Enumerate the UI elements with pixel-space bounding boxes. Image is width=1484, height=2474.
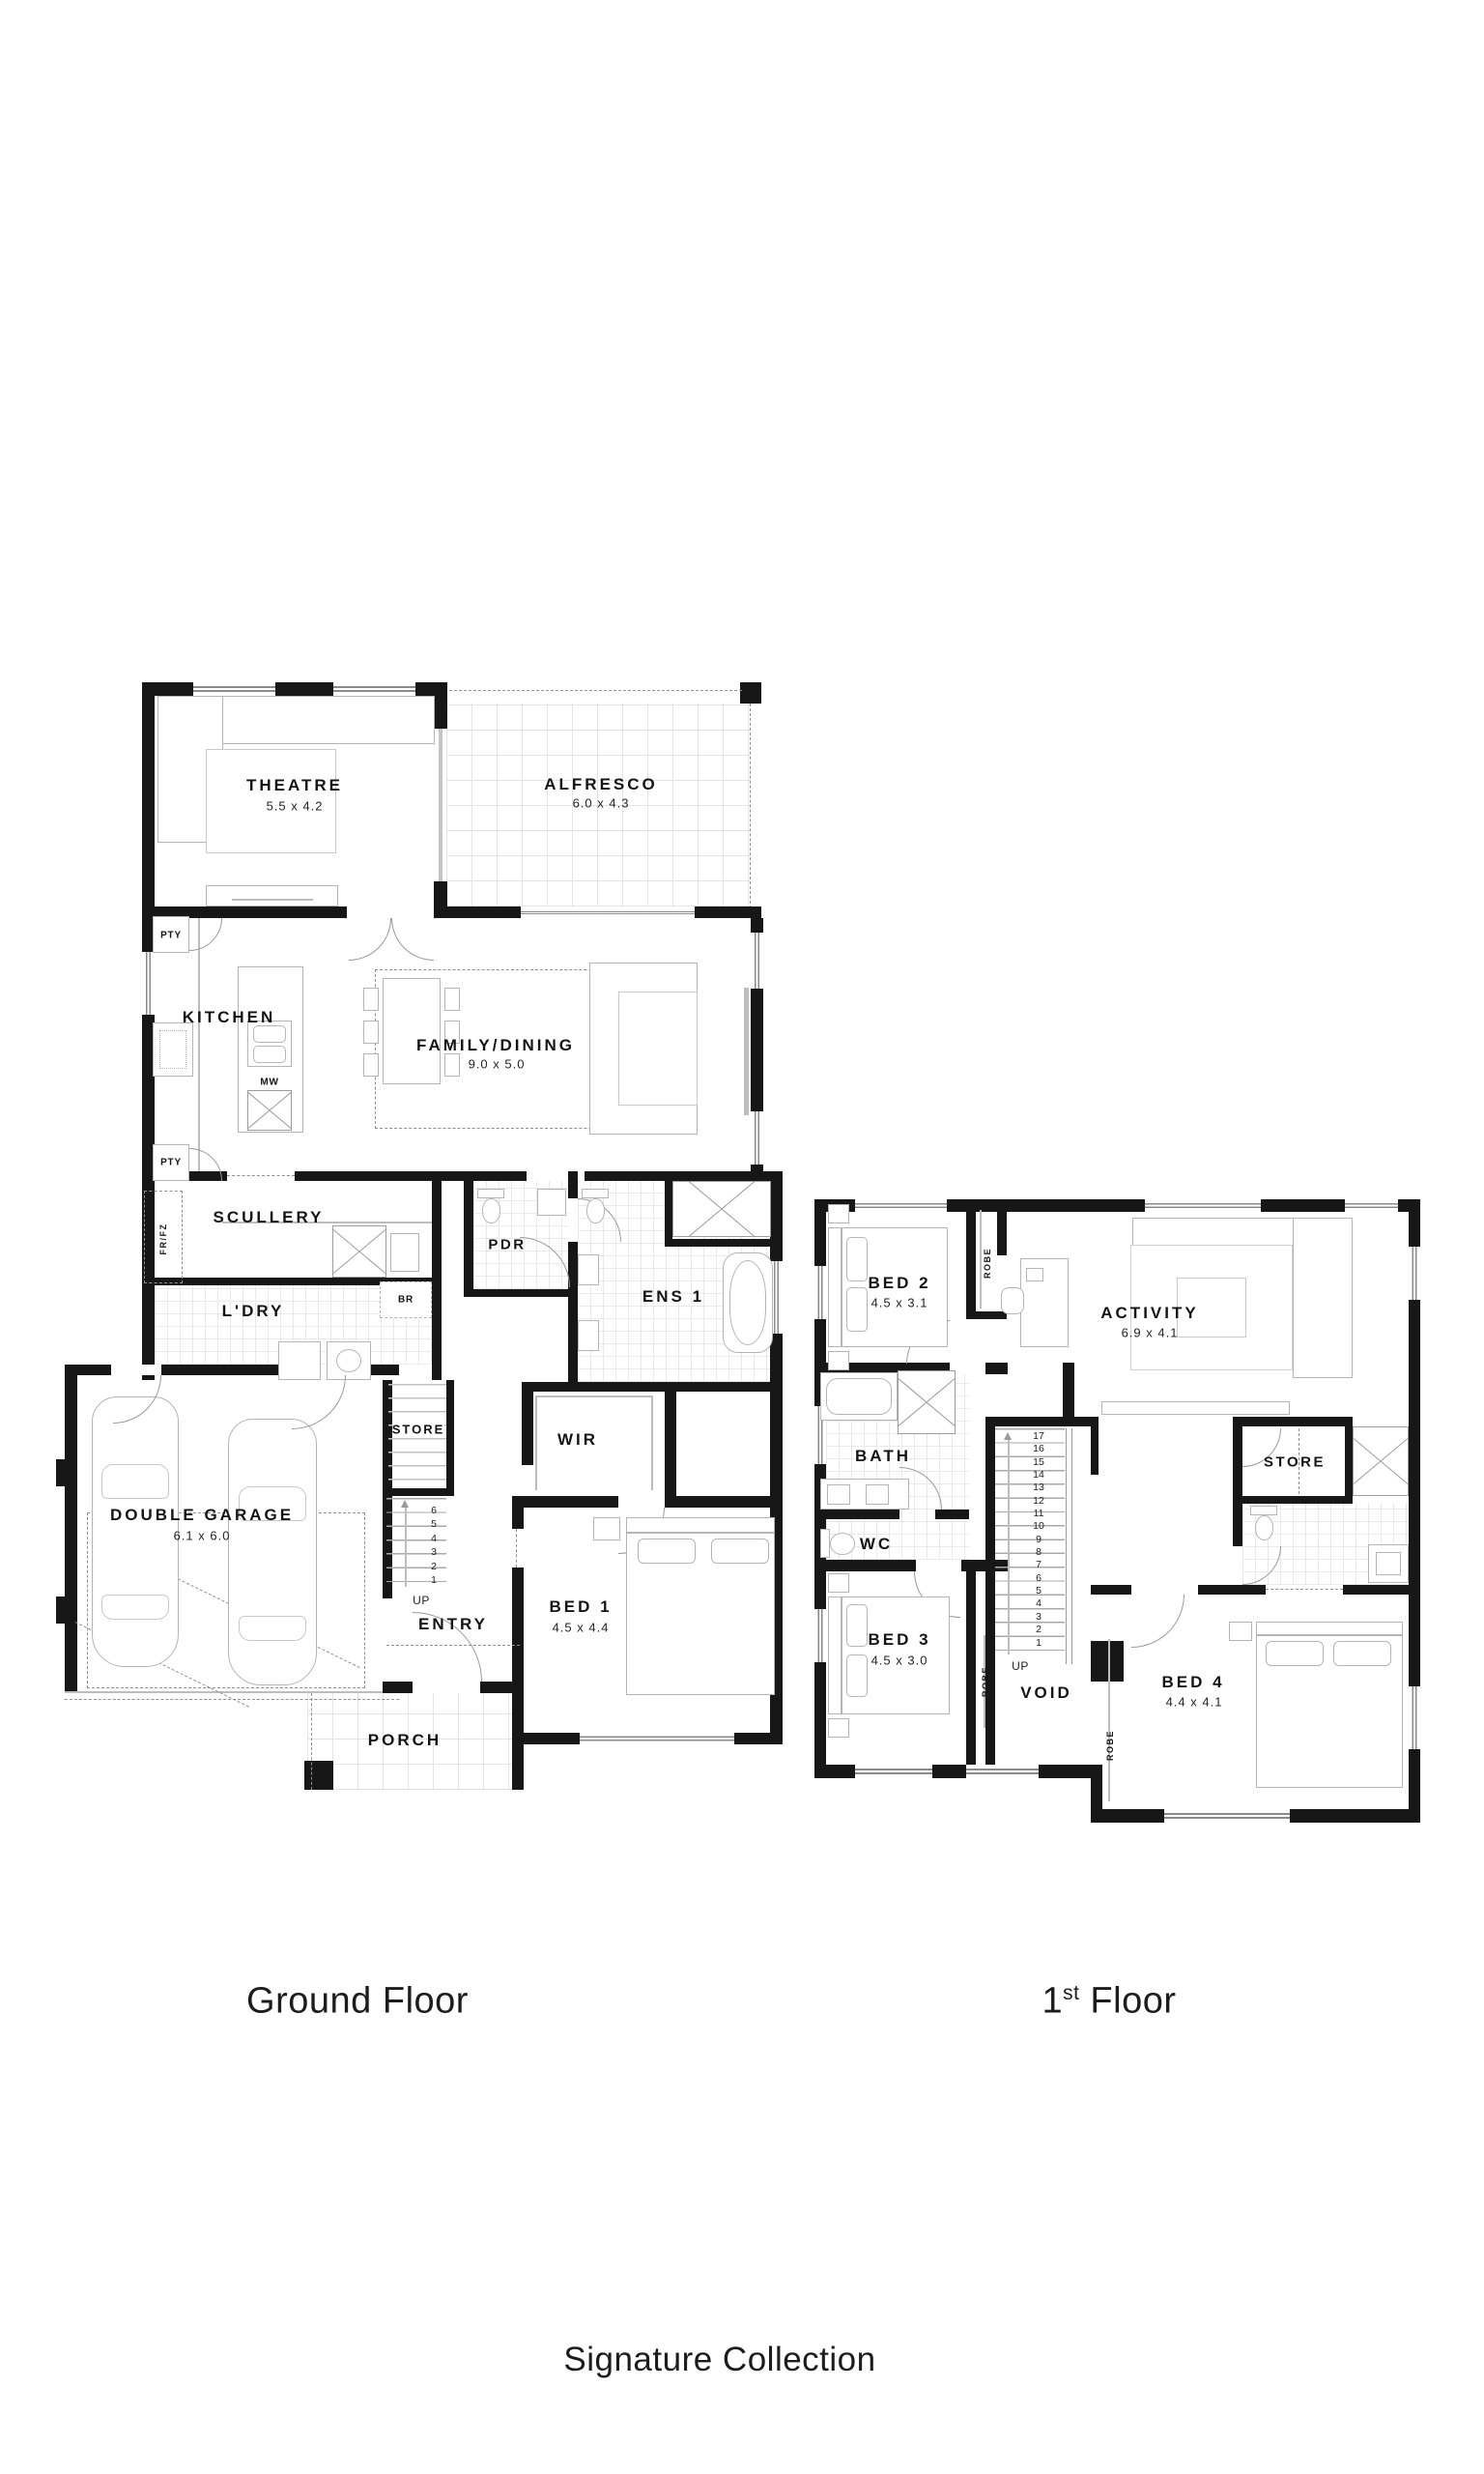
room-label-store-first: STORE (1264, 1454, 1326, 1471)
room-label-bath: BATH (855, 1447, 911, 1466)
pdr-bottom-wall (464, 1289, 578, 1297)
ens1-vanity (578, 1320, 599, 1351)
pillow (1266, 1641, 1324, 1666)
bed4-top-wall (1198, 1585, 1244, 1595)
bed2-bath-wall (985, 1363, 1008, 1374)
label-mw: MW (260, 1078, 278, 1088)
bed1-left-wall (512, 1496, 524, 1529)
ens1-left-wall (568, 1171, 578, 1198)
nightstand (1229, 1622, 1252, 1641)
dining-chair (363, 1053, 379, 1077)
label-pty-top: PTY (160, 931, 182, 941)
window (751, 933, 763, 989)
pillow (638, 1539, 696, 1564)
alfresco-corner-post (740, 682, 761, 704)
label-up-ground: UP (413, 1594, 430, 1607)
wardrobe-shelf (535, 1395, 653, 1397)
floorplan-sheet: { "captions": { "ground_floor": "Ground … (0, 0, 1484, 2474)
nightstand (593, 1517, 620, 1540)
bathtub-inner (729, 1260, 766, 1345)
stair-number: 4 (425, 1532, 442, 1545)
garage-open-edge (65, 1691, 399, 1693)
stair-numbers-first: 1716151413121110987654321 (1024, 1430, 1053, 1650)
pantry-door-arc (189, 1148, 222, 1181)
stair-right-wall (1091, 1417, 1099, 1475)
toilet-bowl (482, 1198, 500, 1223)
robe-rail (980, 1210, 982, 1309)
wall (432, 1171, 442, 1380)
dining-chair (363, 988, 379, 1011)
label-pty-bottom: PTY (160, 1158, 182, 1168)
toilet-tank (1250, 1506, 1277, 1515)
pantry-door-arc (189, 918, 222, 951)
window (333, 682, 415, 696)
theatre-screen (206, 885, 338, 906)
store-left-wall (1233, 1417, 1242, 1504)
wall (295, 1171, 442, 1181)
window (1409, 1247, 1420, 1300)
bed2-headboard (828, 1227, 842, 1347)
glass-divider (437, 729, 444, 881)
toilet-tank (820, 1529, 830, 1558)
wall-pier (56, 1597, 68, 1624)
room-dim-bed1: 4.5 x 4.4 (553, 1621, 610, 1635)
room-label-bed1: BED 1 (549, 1597, 612, 1617)
room-label-theatre: THEATRE (246, 776, 343, 795)
room-dim-bed4: 4.4 x 4.1 (1166, 1695, 1223, 1710)
vanity-basin (866, 1484, 889, 1505)
ens1-shower-wall (665, 1171, 672, 1247)
desk-monitor (1026, 1268, 1043, 1281)
alfresco-bottom-wall (695, 906, 761, 918)
room-label-void: VOID (1020, 1683, 1072, 1703)
label-robe-bed4: ROBE (1105, 1730, 1115, 1761)
car-rear-window (239, 1616, 306, 1641)
ens2-bottom-wall (1343, 1585, 1420, 1595)
label-robe-bed3: ROBE (981, 1666, 990, 1697)
window (855, 1199, 947, 1212)
stair-number: 3 (1024, 1611, 1053, 1624)
stair-number: 17 (1024, 1430, 1053, 1443)
room-label-family: FAMILY/DINING (416, 1036, 575, 1055)
stair-number: 1 (425, 1573, 442, 1587)
tv-unit (744, 988, 749, 1115)
window (142, 952, 155, 1015)
island-cabinet (247, 1090, 292, 1131)
stair-number: 16 (1024, 1443, 1053, 1455)
window (1409, 1686, 1420, 1749)
wall (442, 1171, 527, 1181)
wall (434, 682, 447, 729)
room-dim-alfresco: 6.0 x 4.3 (573, 796, 630, 811)
pillow (846, 1654, 868, 1697)
alfresco-open-edge (444, 690, 742, 692)
window (1164, 1809, 1290, 1823)
first-floor-word: Floor (1079, 1981, 1176, 2022)
pillow (711, 1539, 769, 1564)
nightstand (828, 1718, 849, 1738)
door-opening (111, 1365, 161, 1375)
room-label-kitchen: KITCHEN (183, 1008, 276, 1027)
wall (585, 1171, 783, 1181)
nightstand (828, 1204, 849, 1223)
room-label-bed4: BED 4 (1161, 1673, 1224, 1692)
bed1-top-wall (665, 1496, 783, 1508)
void-balustrade (1066, 1428, 1072, 1664)
bed4-headboard (1256, 1622, 1403, 1635)
window (814, 1609, 826, 1662)
room-dim-family: 9.0 x 5.0 (469, 1057, 526, 1072)
entry-ceiling-line (386, 1645, 520, 1647)
kitchen-bench-edge (198, 918, 200, 1171)
window (521, 909, 695, 916)
store-divider (383, 1488, 454, 1496)
car (92, 1396, 179, 1667)
bed4-door-arc (1131, 1595, 1184, 1648)
window (855, 1765, 932, 1778)
toilet-tank (477, 1189, 504, 1198)
ens1-vanity (578, 1254, 599, 1285)
wir-left-wall (522, 1382, 533, 1465)
stair-number: 13 (1024, 1482, 1053, 1494)
ens1-shower (672, 1181, 771, 1237)
dining-chair (444, 1053, 460, 1077)
bed3-right-wall (966, 1560, 976, 1765)
stair-number: 1 (1024, 1637, 1053, 1650)
store-bottom-wall (1233, 1496, 1353, 1504)
label-up-first: UP (1012, 1659, 1029, 1673)
stair-number: 7 (1024, 1559, 1053, 1571)
bath-shower (898, 1370, 956, 1434)
toilet-bowl (1255, 1515, 1273, 1540)
room-label-alfresco: ALFRESCO (544, 775, 658, 794)
porch-right-wall (512, 1693, 524, 1790)
room-label-wc: WC (860, 1535, 893, 1554)
entry-bottom-wall (480, 1682, 524, 1693)
caption-ground-floor: Ground Floor (246, 1981, 469, 2023)
room-label-entry: ENTRY (418, 1615, 488, 1634)
stair-left-wall (985, 1417, 995, 1765)
vanity-basin (827, 1484, 850, 1505)
bath-wc-wall (935, 1510, 969, 1519)
pdr-basin (537, 1189, 566, 1216)
pillow (846, 1287, 868, 1332)
car-windshield (101, 1464, 169, 1499)
room-label-scullery: SCULLERY (214, 1208, 325, 1227)
garage-left-wall (65, 1365, 77, 1691)
ens2-basin (1376, 1552, 1401, 1575)
bath-wc-wall (814, 1510, 899, 1519)
car (228, 1419, 317, 1685)
caption-first-floor: 1st Floor (1042, 1981, 1176, 2023)
room-label-bed3: BED 3 (868, 1630, 930, 1650)
wardrobe-shelf (651, 1395, 653, 1490)
hall-activity-wall (1063, 1363, 1074, 1423)
stair-arrow-head (401, 1496, 409, 1508)
ens1-shower-wall (665, 1239, 783, 1247)
stair-number: 2 (1024, 1624, 1053, 1636)
void-niche (1091, 1641, 1124, 1682)
toilet-tank (582, 1189, 609, 1198)
window (751, 1111, 763, 1165)
window (814, 1266, 826, 1319)
entry-bottom-wall (383, 1682, 413, 1693)
bathtub-inner (826, 1378, 892, 1415)
sink-bowl (253, 1025, 286, 1043)
store-top-wall (1233, 1417, 1353, 1426)
nightstand (828, 1573, 849, 1593)
toilet-bowl (830, 1533, 855, 1555)
sink-bowl (253, 1046, 286, 1063)
bed1-headboard (626, 1517, 775, 1533)
theatre-screen-line (232, 899, 313, 901)
sideboard (1101, 1401, 1290, 1415)
stair-numbers-ground: 654321 (425, 1504, 442, 1587)
scullery-sink (390, 1233, 419, 1272)
room-dim-activity: 6.9 x 4.1 (1122, 1326, 1179, 1340)
door-arc (391, 918, 434, 961)
robe-rail (1108, 1639, 1110, 1801)
trough-bowl (336, 1349, 361, 1372)
label-robe-bed2: ROBE (983, 1248, 992, 1279)
stair-number: 10 (1024, 1520, 1053, 1533)
desk-chair (1001, 1287, 1024, 1314)
stair-arrow-head (1004, 1428, 1012, 1440)
caption-collection: Signature Collection (563, 2341, 875, 2379)
stair-number: 5 (425, 1517, 442, 1531)
stair-number: 4 (1024, 1597, 1053, 1610)
nook-wall (997, 1199, 1007, 1255)
stair-number: 9 (1024, 1534, 1053, 1546)
opening (516, 1529, 518, 1568)
toilet-bowl (586, 1198, 605, 1223)
ens2-left-wall (1233, 1504, 1242, 1546)
room-label-pdr: PDR (488, 1237, 526, 1253)
window (1145, 1199, 1261, 1212)
room-dim-garage: 6.1 x 6.0 (174, 1529, 231, 1543)
label-frfz: FR/FZ (158, 1223, 168, 1255)
cooktop-burners (159, 1030, 186, 1069)
porch-edge (311, 1693, 313, 1790)
stair-number: 11 (1024, 1508, 1053, 1520)
wc-bottom-wall (814, 1560, 916, 1571)
porch-post (304, 1761, 333, 1790)
ens2-bottom-dash (1266, 1589, 1343, 1591)
ens1-left-wall (568, 1242, 578, 1390)
room-label-bed2: BED 2 (868, 1274, 930, 1293)
stair-top-wall (985, 1417, 1099, 1426)
bed4-top-wall (1091, 1585, 1131, 1595)
stair-number: 5 (1024, 1585, 1053, 1597)
bed3-headboard (828, 1597, 842, 1714)
room-label-store-ground: STORE (392, 1423, 445, 1437)
pillow (846, 1237, 868, 1281)
car-rear-window (101, 1595, 169, 1620)
window (966, 1765, 1039, 1778)
robe-end-wall (966, 1311, 1007, 1319)
dining-chair (363, 1021, 379, 1044)
first-floor-number: 1 (1042, 1981, 1063, 2022)
nightstand (828, 1351, 849, 1370)
pdr-left-wall (464, 1171, 473, 1297)
window (193, 682, 275, 696)
window (580, 1733, 734, 1744)
activity-sofa (1293, 1218, 1353, 1378)
stair-number: 14 (1024, 1469, 1053, 1482)
room-label-garage: DOUBLE GARAGE (110, 1506, 294, 1525)
stair-number: 3 (425, 1545, 442, 1559)
dining-chair (444, 988, 460, 1011)
stair-number: 15 (1024, 1456, 1053, 1469)
bed2-robe-wall (966, 1199, 976, 1317)
wir-right-wall (665, 1382, 676, 1504)
room-label-porch: PORCH (368, 1731, 442, 1750)
window (1345, 1199, 1398, 1212)
door-arc (292, 1375, 346, 1429)
pillow (1333, 1641, 1391, 1666)
pillow (846, 1604, 868, 1647)
room-label-ldry: L'DRY (222, 1302, 285, 1321)
stair-number: 12 (1024, 1495, 1053, 1508)
stair-number: 6 (1024, 1572, 1053, 1585)
ens2-shower (1353, 1426, 1409, 1496)
label-br: BR (398, 1295, 414, 1306)
scullery-sink-cabinet (332, 1225, 386, 1278)
family-sofa-seat (618, 992, 698, 1106)
wall-pier (56, 1459, 68, 1486)
stair-number: 2 (425, 1560, 442, 1573)
opening (227, 1175, 295, 1177)
door-arc (349, 918, 391, 961)
room-dim-theatre: 5.5 x 4.2 (267, 799, 324, 814)
first-floor-ordinal: st (1063, 1982, 1079, 2004)
room-dim-bed3: 4.5 x 3.0 (871, 1654, 928, 1668)
stair-number: 6 (425, 1504, 442, 1517)
stair-right-wall (446, 1380, 454, 1496)
wardrobe-shelf (535, 1395, 537, 1490)
room-label-wir: WIR (557, 1430, 598, 1450)
bed1-top-wall (522, 1496, 618, 1508)
stair-number: 8 (1024, 1546, 1053, 1559)
alfresco-open-edge (750, 704, 752, 908)
dining-table (383, 978, 441, 1084)
stair-arrow-line (1008, 1436, 1010, 1654)
room-label-activity: ACTIVITY (1100, 1304, 1198, 1323)
room-dim-bed2: 4.5 x 3.1 (871, 1296, 928, 1310)
room-label-ens1: ENS 1 (642, 1287, 704, 1307)
washing-machine (278, 1341, 321, 1380)
store-shower-wall (1345, 1417, 1353, 1504)
wall (434, 881, 447, 918)
stair-arrow-line (405, 1504, 407, 1587)
